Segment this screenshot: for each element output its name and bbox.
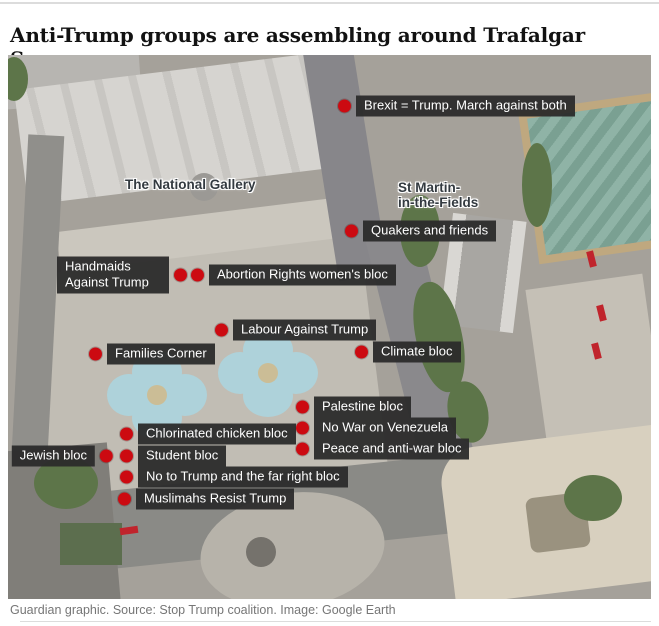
red-dot-icon xyxy=(120,450,133,463)
marker-label: Families Corner xyxy=(107,344,215,365)
guardian-graphic-page: Anti-Trump groups are assembling around … xyxy=(0,0,659,626)
red-dot-icon xyxy=(174,269,187,282)
marker-chlorinated-chicken: Chlorinated chicken bloc xyxy=(120,424,296,445)
marker-abortion-rights: Abortion Rights women's bloc xyxy=(191,265,396,286)
marker-label: Jewish bloc xyxy=(12,446,95,467)
marker-peace-anti-war: Peace and anti-war bloc xyxy=(296,439,469,460)
bottom-divider xyxy=(20,621,651,622)
marker-label: Quakers and friends xyxy=(363,221,496,242)
red-dot-icon xyxy=(345,225,358,238)
marker-label: Labour Against Trump xyxy=(233,320,376,341)
red-dot-icon xyxy=(89,348,102,361)
marker-climate: Climate bloc xyxy=(355,342,461,363)
marker-label: Muslimahs Resist Trump xyxy=(136,489,294,510)
marker-student: Student bloc xyxy=(120,446,226,467)
red-dot-icon xyxy=(355,346,368,359)
red-dot-icon xyxy=(120,428,133,441)
marker-label: No to Trump and the far right bloc xyxy=(138,467,348,488)
marker-label: Brexit = Trump. March against both xyxy=(356,96,575,117)
red-dot-icon xyxy=(215,324,228,337)
marker-label: Climate bloc xyxy=(373,342,461,363)
marker-no-to-trump-far-right: No to Trump and the far right bloc xyxy=(120,467,348,488)
map-trees-st-martins-lane xyxy=(522,143,552,227)
marker-label: Palestine bloc xyxy=(314,397,411,418)
marker-brexit-march: Brexit = Trump. March against both xyxy=(338,96,575,117)
place-label-national-gallery: The National Gallery xyxy=(125,177,256,192)
map-buildings-right xyxy=(525,274,651,449)
marker-families-corner: Families Corner xyxy=(89,344,215,365)
marker-label: Student bloc xyxy=(138,446,226,467)
red-dot-icon xyxy=(296,443,309,456)
top-divider xyxy=(0,2,659,4)
marker-palestine: Palestine bloc xyxy=(296,397,411,418)
marker-label: Handmaids Against Trump xyxy=(57,257,169,294)
marker-label: Chlorinated chicken bloc xyxy=(138,424,296,445)
marker-label: No War on Venezuela xyxy=(314,418,456,439)
marker-labour: Labour Against Trump xyxy=(215,320,376,341)
source-caption: Guardian graphic. Source: Stop Trump coa… xyxy=(10,603,396,617)
map-green-roof xyxy=(60,523,122,565)
marker-no-war-venezuela: No War on Venezuela xyxy=(296,418,456,439)
red-dot-icon xyxy=(296,422,309,435)
red-dot-icon xyxy=(118,493,131,506)
marker-label: Abortion Rights women's bloc xyxy=(209,265,396,286)
red-dot-icon xyxy=(120,471,133,484)
map-trees-bottom-right xyxy=(564,475,622,521)
red-dot-icon xyxy=(338,100,351,113)
satellite-map: The National Gallery St Martin- in-the-F… xyxy=(8,55,651,599)
map-statue-island xyxy=(246,537,276,567)
marker-quakers: Quakers and friends xyxy=(345,221,496,242)
place-label-st-martin-in-the-fields: St Martin- in-the-Fields xyxy=(398,180,478,210)
marker-jewish: Jewish bloc xyxy=(12,446,113,467)
red-dot-icon xyxy=(296,401,309,414)
red-dot-icon xyxy=(191,269,204,282)
marker-label: Peace and anti-war bloc xyxy=(314,439,469,460)
red-dot-icon xyxy=(100,450,113,463)
marker-muslimahs: Muslimahs Resist Trump xyxy=(118,489,294,510)
marker-handmaids: Handmaids Against Trump xyxy=(57,257,187,294)
